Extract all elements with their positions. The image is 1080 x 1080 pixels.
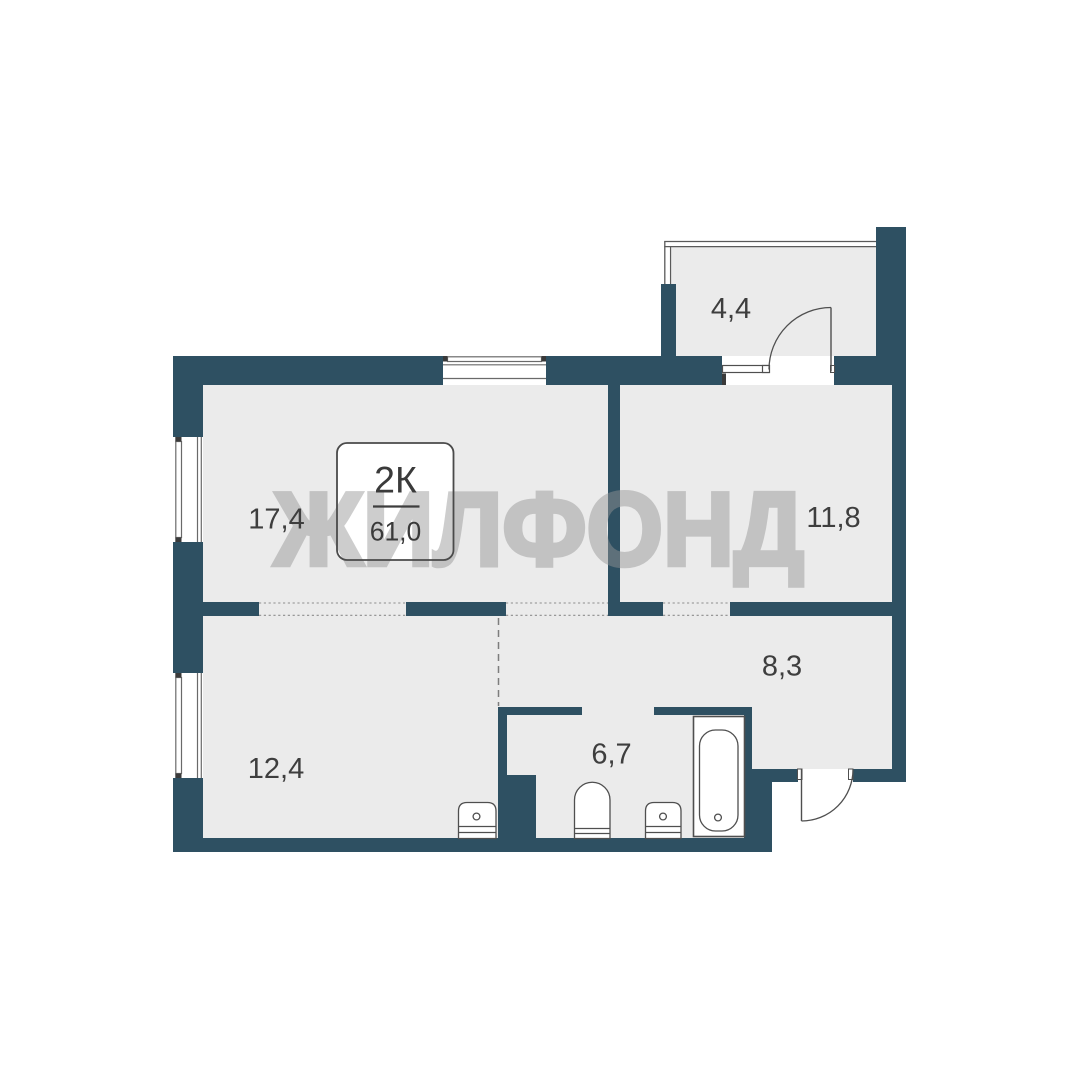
svg-text:11,8: 11,8 — [806, 502, 860, 534]
svg-text:4,4: 4,4 — [711, 293, 751, 325]
svg-text:17,4: 17,4 — [248, 504, 304, 536]
svg-text:8,3: 8,3 — [762, 650, 802, 682]
svg-text:61,0: 61,0 — [370, 517, 422, 547]
svg-text:6,7: 6,7 — [591, 739, 631, 771]
svg-text:2К: 2К — [374, 459, 417, 501]
svg-text:12,4: 12,4 — [248, 753, 304, 785]
